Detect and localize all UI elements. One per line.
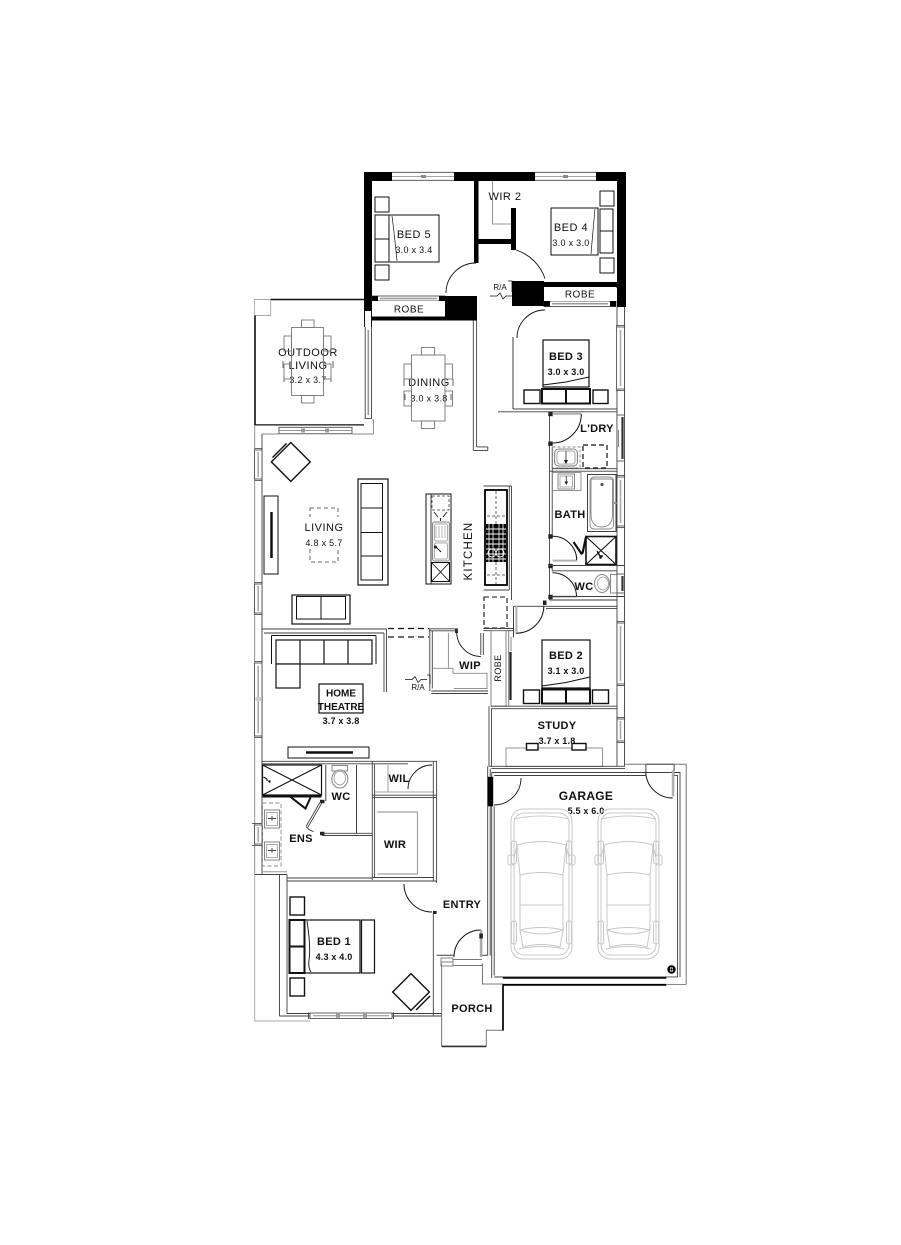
- svg-text:ROBE: ROBE: [394, 305, 424, 316]
- svg-text:3.0 x 3.4: 3.0 x 3.4: [395, 245, 432, 255]
- svg-text:5.5 x 6.0: 5.5 x 6.0: [568, 806, 605, 816]
- svg-text:HOME: HOME: [326, 689, 356, 700]
- svg-text:OUTDOOR: OUTDOOR: [278, 347, 338, 359]
- svg-text:BATH: BATH: [555, 509, 586, 521]
- svg-text:KITCHEN: KITCHEN: [463, 522, 475, 581]
- svg-text:ENTRY: ENTRY: [443, 899, 482, 911]
- svg-text:4.3 x 4.0: 4.3 x 4.0: [316, 952, 353, 962]
- svg-text:WIR 2: WIR 2: [488, 191, 521, 203]
- svg-text:ROBE: ROBE: [493, 654, 503, 681]
- svg-text:WIP: WIP: [459, 660, 481, 672]
- svg-text:3.0 x 3.0: 3.0 x 3.0: [552, 238, 589, 248]
- svg-text:BED 4: BED 4: [554, 222, 588, 234]
- svg-text:3.0 x 3.8: 3.0 x 3.8: [410, 394, 447, 404]
- svg-text:BED 2: BED 2: [549, 650, 583, 662]
- svg-text:BED 5: BED 5: [397, 229, 431, 241]
- svg-text:4.8 x 5.7: 4.8 x 5.7: [305, 538, 342, 548]
- svg-text:STUDY: STUDY: [538, 720, 577, 732]
- svg-text:BED 3: BED 3: [549, 351, 583, 363]
- svg-text:L'DRY: L'DRY: [580, 423, 614, 435]
- svg-text:BED 1: BED 1: [317, 936, 351, 948]
- svg-text:PORCH: PORCH: [451, 1003, 492, 1015]
- svg-text:DINING: DINING: [408, 377, 450, 389]
- svg-text:WIL: WIL: [388, 773, 409, 785]
- svg-text:ROBE: ROBE: [565, 290, 595, 301]
- svg-text:3.7 x 3.8: 3.7 x 3.8: [323, 716, 360, 726]
- svg-text:WC: WC: [575, 581, 594, 593]
- svg-text:3.7 x 1.8: 3.7 x 1.8: [539, 736, 576, 746]
- svg-text:LIVING: LIVING: [304, 522, 343, 534]
- svg-text:LIVING: LIVING: [288, 360, 327, 372]
- svg-text:R/A: R/A: [493, 283, 507, 292]
- svg-text:GARAGE: GARAGE: [559, 789, 613, 803]
- svg-text:ENS: ENS: [289, 833, 313, 845]
- svg-text:THEATRE: THEATRE: [318, 702, 365, 713]
- svg-text:WIR: WIR: [384, 839, 406, 851]
- svg-text:3.1 x 3.0: 3.1 x 3.0: [548, 666, 585, 676]
- svg-text:3.0 x 3.0: 3.0 x 3.0: [548, 367, 585, 377]
- svg-text:WC: WC: [332, 791, 351, 803]
- svg-text:3.2 x 3.7: 3.2 x 3.7: [289, 375, 326, 385]
- svg-text:R/A: R/A: [411, 683, 425, 692]
